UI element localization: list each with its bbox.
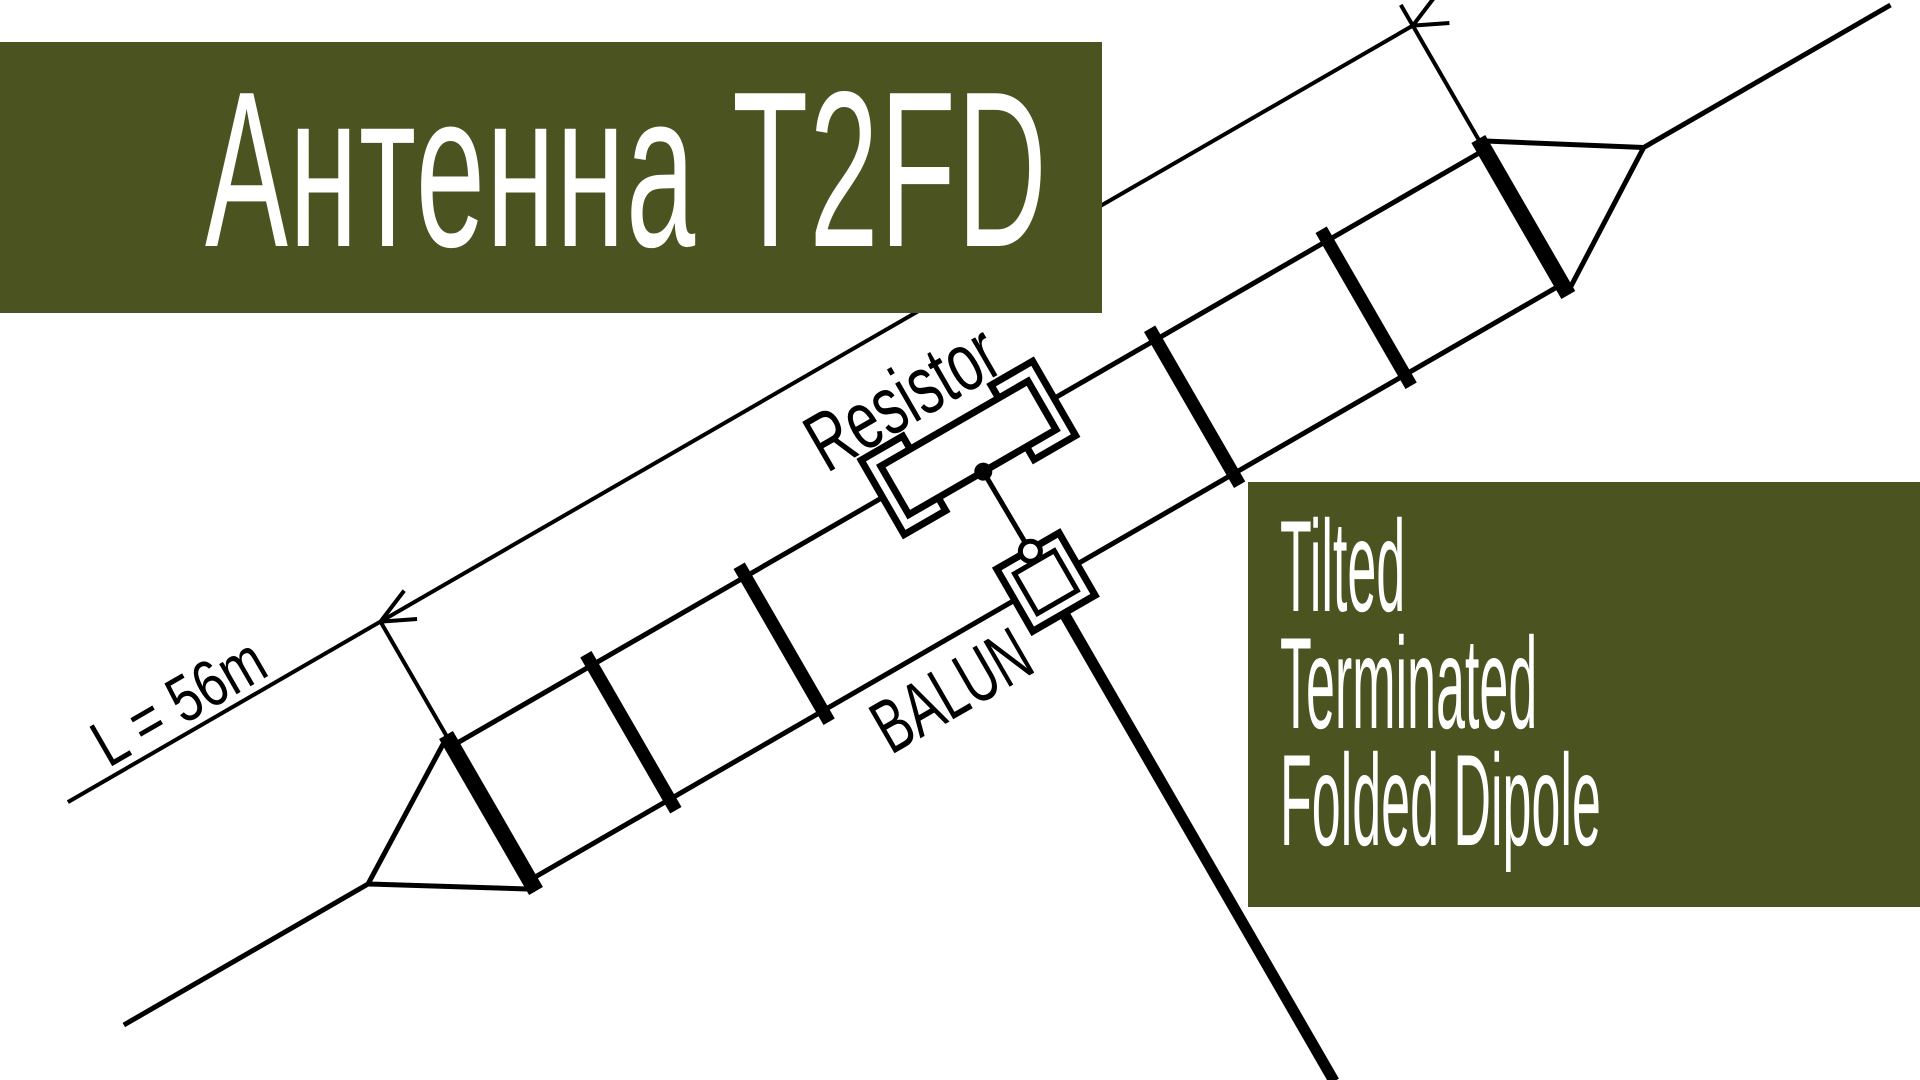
spreader-bar: [1315, 227, 1416, 389]
spreader-bar: [580, 651, 681, 813]
spreader-bar: [734, 563, 835, 725]
end-spreader-bar-left: [439, 731, 543, 895]
resistor-balun-connector: [983, 471, 1031, 553]
subtitle-line: Folded Dipole: [1280, 742, 1536, 859]
page-canvas: Resistor BALUN L = 56m Антенна T2FD Tilt…: [0, 0, 1920, 1080]
title-banner: Антенна T2FD: [0, 42, 1102, 313]
subtitle-line: Terminated: [1280, 625, 1536, 742]
length-label: L = 56m: [78, 622, 278, 780]
end-spreader-bar-right: [1471, 135, 1575, 299]
extension-line-left: [381, 622, 448, 737]
spreader-bar: [1144, 326, 1245, 488]
subtitle-box: Tilted Terminated Folded Dipole: [1248, 482, 1920, 907]
balun-symbol: [997, 533, 1095, 631]
subtitle-line: Tilted: [1280, 508, 1536, 625]
support-rope-left: [124, 884, 368, 1025]
dimension-arrow-right: [1405, 0, 1452, 39]
page-title: Антенна T2FD: [205, 42, 1048, 306]
support-rope-right: [1644, 5, 1891, 148]
